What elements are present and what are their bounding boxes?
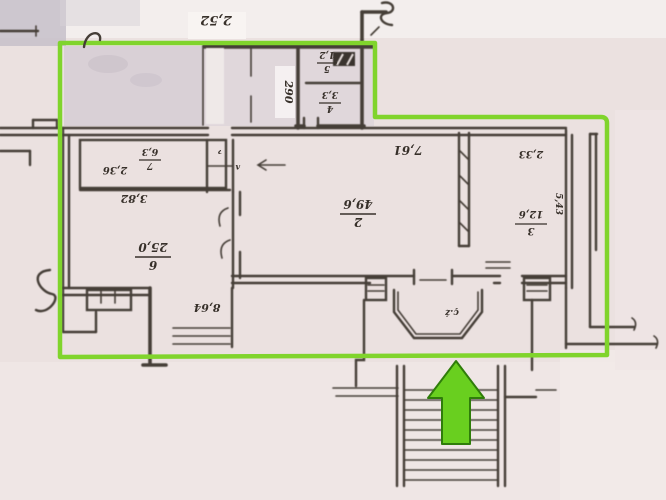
- room-2-number: 2: [354, 215, 363, 229]
- closet-annotation-b: ɂ: [218, 148, 222, 157]
- room-5-area: 1,2: [319, 49, 335, 59]
- dimension-room6-width-label: 3,82: [120, 192, 147, 205]
- room-6-number: 6: [148, 258, 157, 272]
- dimension-top: 2,52: [200, 12, 233, 27]
- dimension-bottom-label: 8,64: [194, 301, 221, 314]
- room-2-area: 49,6: [343, 197, 373, 211]
- room-7-area: 6,3: [141, 146, 158, 157]
- dimension-room3-depth-label: 5,43: [553, 193, 563, 215]
- room-4-number: 4: [327, 103, 334, 114]
- room-5-number: 5: [324, 63, 330, 73]
- dimension-hall-width-label: 7,61: [393, 143, 422, 157]
- closet-annotation-a: ʌ: [235, 163, 240, 173]
- dimension-room3-width-label: 2,33: [519, 148, 544, 159]
- dimension-vertical-label: 290: [282, 80, 295, 104]
- bay-annotation: ç.ż: [444, 307, 459, 317]
- dimension-top-label: 2,52: [200, 12, 233, 27]
- floor-plan-drawing: 2,52 290 5 1,2 4 3,3 7 6,3 2,36 3,82 6 2…: [0, 0, 666, 500]
- room-4-area: 3,3: [321, 89, 338, 100]
- dimension-room7-label: 2,36: [103, 164, 128, 175]
- room-3-number: 3: [527, 225, 534, 236]
- floor-plan-photo: 2,52 290 5 1,2 4 3,3 7 6,3 2,36 3,82 6 2…: [0, 0, 666, 500]
- room-3-area: 12,6: [519, 208, 543, 219]
- room-7-number: 7: [146, 160, 153, 171]
- room-6-area: 25,0: [138, 240, 169, 254]
